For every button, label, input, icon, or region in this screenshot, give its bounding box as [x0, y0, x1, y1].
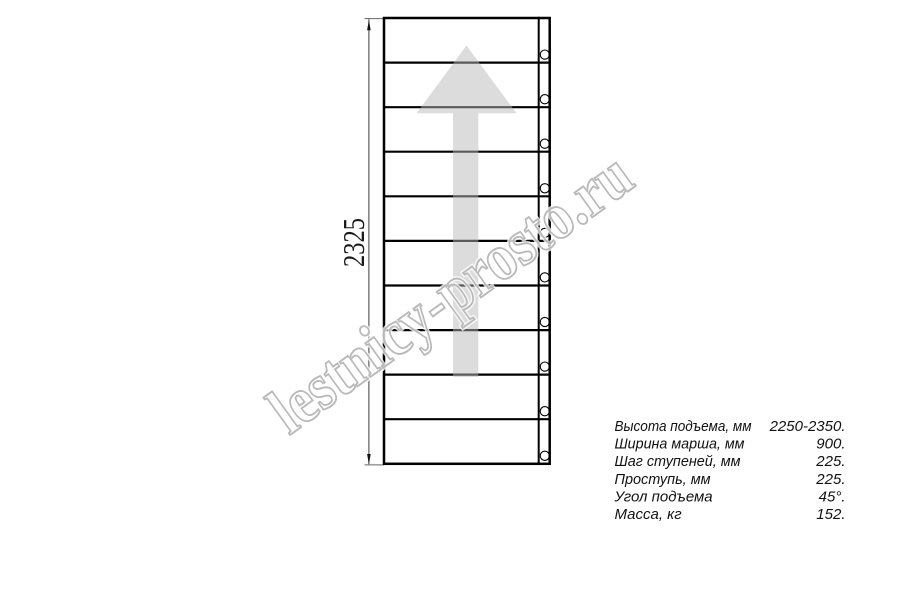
svg-text:2250-2350.: 2250-2350.	[769, 418, 846, 435]
svg-text:Масса, кг: Масса, кг	[615, 506, 683, 523]
svg-text:152.: 152.	[816, 506, 845, 523]
svg-text:Ширина марша, мм: Ширина марша, мм	[615, 436, 745, 453]
svg-text:Угол подъема: Угол подъема	[614, 488, 713, 505]
svg-text:45°.: 45°.	[819, 488, 846, 505]
svg-text:900.: 900.	[816, 436, 845, 453]
svg-text:225.: 225.	[815, 471, 845, 488]
svg-text:Проступь, мм: Проступь, мм	[615, 471, 711, 488]
svg-text:2325: 2325	[336, 218, 371, 267]
svg-text:225.: 225.	[815, 453, 845, 470]
svg-text:Высота подъема, мм: Высота подъема, мм	[615, 418, 752, 435]
svg-text:Шаг ступеней, мм: Шаг ступеней, мм	[615, 453, 741, 470]
